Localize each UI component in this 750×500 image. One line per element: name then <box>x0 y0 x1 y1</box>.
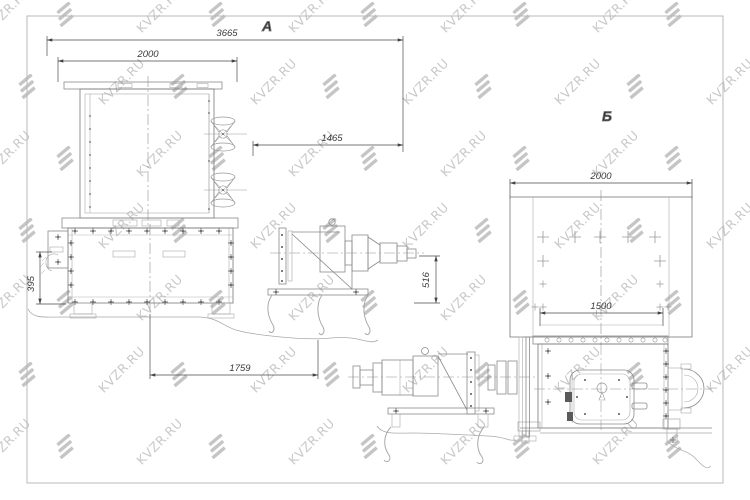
dimension-drive-extension-a: 1465 <box>253 133 403 156</box>
bearing-cover <box>668 364 704 413</box>
fan-units <box>204 117 247 207</box>
fan-bottom <box>204 173 247 207</box>
dimension-axis-height-a: 516 <box>414 256 440 303</box>
dimension-body-width-a: 2000 <box>58 49 237 82</box>
view-b-drive <box>348 337 536 464</box>
door-latch-top <box>565 392 572 402</box>
base-legs <box>70 303 234 318</box>
svg-text:3665: 3665 <box>216 28 238 39</box>
access-door <box>565 370 647 424</box>
alignment-crosses <box>532 231 672 311</box>
view-b: Б 2000 <box>348 108 712 468</box>
view-b-hopper: 1500 <box>510 190 692 345</box>
view-a-label: А <box>261 18 272 34</box>
view-a-body <box>28 218 378 342</box>
bolt-marks <box>89 100 210 210</box>
view-b-label: Б <box>602 108 612 124</box>
view-b-feet <box>518 419 712 468</box>
view-a-top-box <box>64 76 222 228</box>
drawing-sheet: KVZR.RUKVZR.RUKVZR.RUKVZR.RUKVZR.RUKVZR.… <box>0 0 750 500</box>
view-a: А 3665 2000 1465 <box>26 18 440 379</box>
view-b-body <box>518 344 712 468</box>
svg-text:395: 395 <box>26 275 37 292</box>
side-bracket <box>40 231 68 274</box>
dimension-overall-width-a: 3665 <box>47 28 403 152</box>
sheet-frame <box>27 16 723 483</box>
svg-text:1465: 1465 <box>321 133 343 144</box>
bolt-marks <box>545 348 669 419</box>
svg-text:516: 516 <box>421 271 432 288</box>
ground-break-line <box>377 426 516 440</box>
fan-top <box>204 117 247 151</box>
svg-text:2000: 2000 <box>136 49 159 60</box>
svg-text:2000: 2000 <box>589 171 612 182</box>
svg-text:1500: 1500 <box>590 301 612 312</box>
svg-text:1759: 1759 <box>229 363 251 374</box>
view-a-drive <box>268 219 424 335</box>
technical-drawing: А 3665 2000 1465 <box>0 0 750 500</box>
dimension-base-span-a: 1759 <box>150 314 318 379</box>
dimension-opening-width-b: 1500 <box>540 301 663 326</box>
bolt-marks <box>68 228 234 305</box>
door-latch-bottom <box>567 412 573 421</box>
bolt-marks <box>281 234 283 282</box>
bolt-marks <box>470 357 472 407</box>
